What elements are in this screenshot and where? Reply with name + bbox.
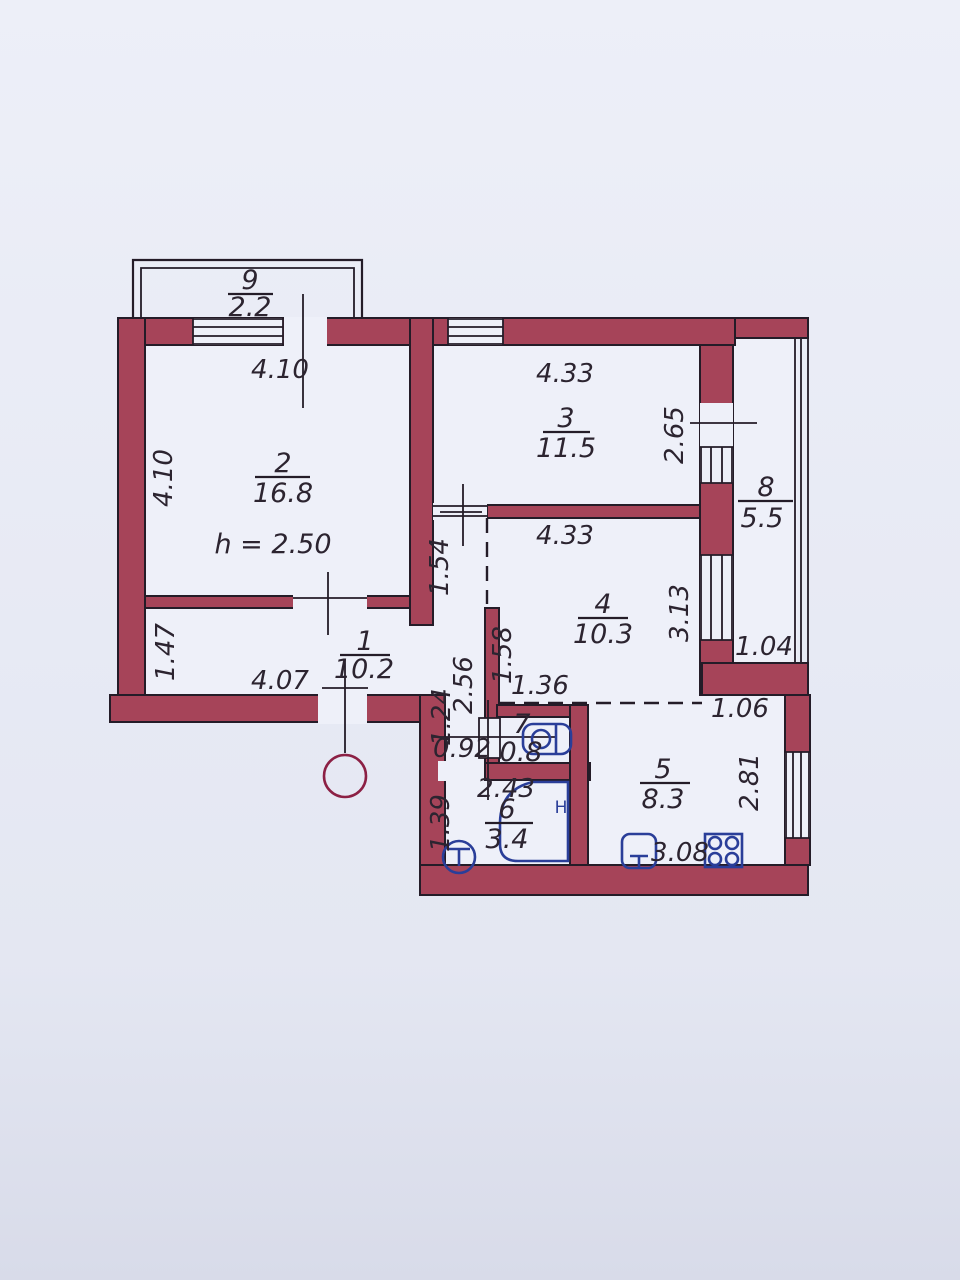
- dim-kitchen-notch: 1.06: [711, 694, 769, 724]
- dim-bath-left: 1.39: [426, 794, 456, 852]
- door-opening-balcony8: [700, 403, 733, 447]
- wall-room1-room2: [145, 596, 410, 608]
- dim-left-height: 4.10: [149, 449, 179, 507]
- entrance-door-opening: [318, 693, 367, 724]
- window-kitchen: [785, 752, 810, 838]
- floor-plan-photo: H 9 2.2 2 16.8 h = 2.50: [0, 0, 960, 1280]
- room-4-area: 10.3: [573, 619, 633, 650]
- dim-pass-154: 1.54: [425, 538, 455, 596]
- room-5-area: 8.3: [642, 784, 685, 815]
- wall-left: [118, 318, 145, 722]
- window-room4-balcony8: [700, 555, 733, 640]
- window-room3: [448, 318, 503, 345]
- dim-balcony8-width: 1.04: [735, 632, 793, 662]
- dim-room4-width: 4.33: [536, 521, 594, 551]
- ceiling-height-note: h = 2.50: [214, 529, 331, 560]
- wall-bottom: [420, 865, 808, 895]
- room-4-number: 4: [594, 589, 611, 620]
- wall-room3-room4: [487, 505, 700, 518]
- dim-hall-bottom: 4.07: [251, 666, 309, 696]
- hall-floor: [145, 608, 487, 695]
- floor-plan-drawing: H 9 2.2 2 16.8 h = 2.50: [0, 0, 960, 1280]
- room-8-area: 5.5: [741, 503, 784, 534]
- door-opening-room2: [293, 594, 367, 610]
- room-3-number: 3: [557, 403, 574, 434]
- wall-wc-top: [497, 705, 580, 717]
- room-5-number: 5: [654, 754, 671, 785]
- room-7-number: 7: [513, 709, 530, 740]
- wall-balcony8-top: [735, 318, 808, 338]
- wall-kitchen-left: [570, 705, 588, 865]
- dim-pass-136: 1.36: [511, 671, 569, 701]
- room-2-area: 16.8: [253, 478, 313, 509]
- wall-balcony8-divider: [700, 345, 733, 695]
- room-2-number: 2: [274, 448, 291, 479]
- wall-bottom-left: [110, 695, 420, 722]
- dim-room4-right: 3.13: [665, 584, 695, 642]
- dim-kitchen-bottom: 3.08: [651, 838, 709, 868]
- dim-room3-width: 4.33: [536, 359, 594, 389]
- room-1-number: 1: [356, 626, 373, 657]
- bathtub-hot-tap-label: H: [555, 798, 568, 818]
- dim-kitchen-right: 2.81: [735, 753, 765, 811]
- room-8-number: 8: [757, 472, 774, 503]
- dim-bath-width: 2.43: [477, 774, 535, 804]
- dim-hall-left: 1.47: [151, 623, 181, 681]
- room-3-area: 11.5: [536, 433, 596, 464]
- dim-corridor-092: 0.92: [433, 734, 491, 764]
- wall-balcony8-bottom: [702, 663, 808, 695]
- room-1-area: 10.2: [334, 654, 394, 685]
- room-6-area: 3.4: [486, 824, 529, 855]
- dim-top-width: 4.10: [251, 355, 309, 385]
- door-opening-balcony9: [284, 317, 327, 346]
- dim-room3-right: 2.65: [660, 406, 690, 464]
- room-9-area: 2.2: [229, 292, 272, 323]
- room-7-area: 0.8: [500, 737, 543, 768]
- window-room3-balcony8: [700, 447, 733, 483]
